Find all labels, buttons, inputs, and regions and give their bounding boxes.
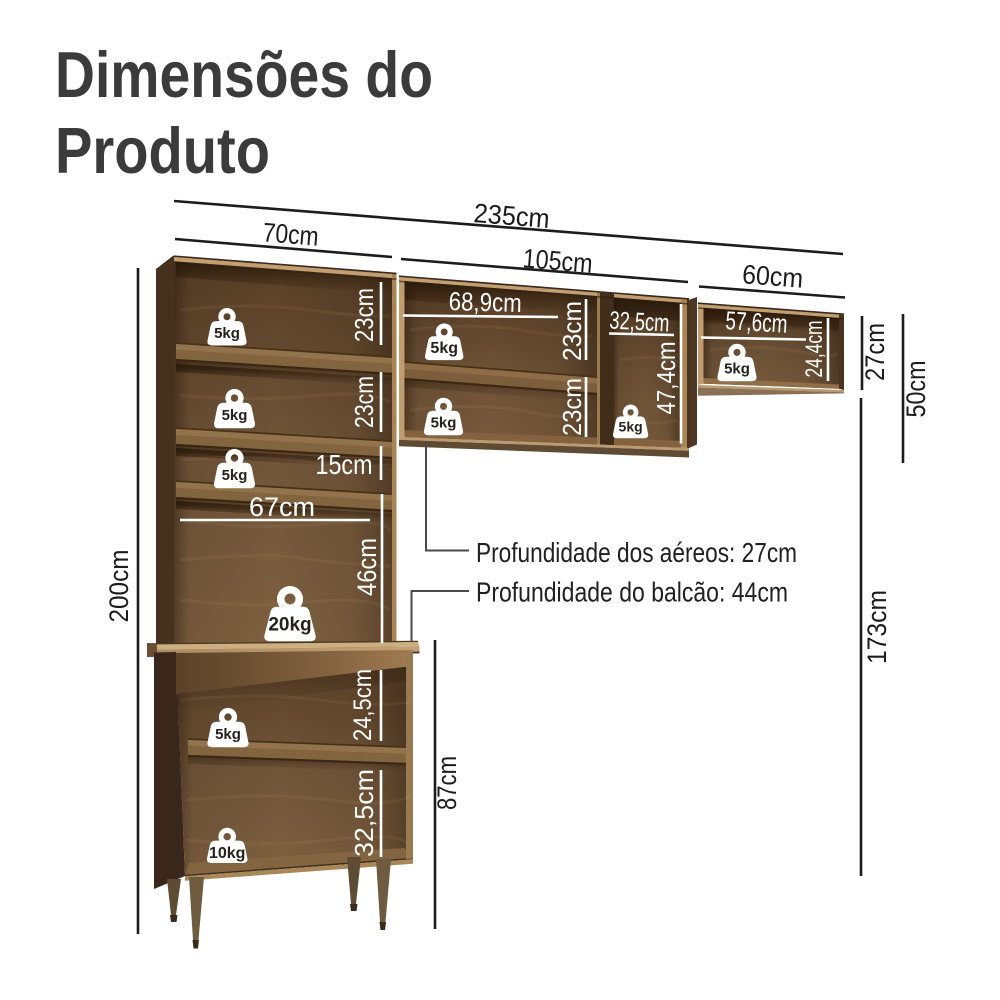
svg-text:15cm: 15cm bbox=[316, 449, 373, 480]
svg-text:Profundidade dos aéreos: 27cm: Profundidade dos aéreos: 27cm bbox=[476, 537, 797, 568]
svg-text:50cm: 50cm bbox=[901, 361, 931, 418]
svg-text:24,5cm: 24,5cm bbox=[349, 669, 377, 741]
svg-text:46cm: 46cm bbox=[352, 538, 382, 596]
svg-text:105cm: 105cm bbox=[522, 243, 594, 279]
svg-text:5kg: 5kg bbox=[430, 340, 458, 357]
svg-text:23cm: 23cm bbox=[557, 301, 587, 361]
svg-text:10kg: 10kg bbox=[209, 845, 245, 862]
svg-text:Produto: Produto bbox=[55, 114, 270, 187]
svg-text:173cm: 173cm bbox=[862, 590, 892, 664]
svg-text:200cm: 200cm bbox=[104, 550, 134, 623]
svg-text:5kg: 5kg bbox=[724, 361, 750, 378]
svg-text:27cm: 27cm bbox=[860, 323, 890, 381]
svg-text:23cm: 23cm bbox=[349, 376, 379, 428]
svg-text:60cm: 60cm bbox=[741, 259, 804, 293]
svg-text:Profundidade do balcão: 44cm: Profundidade do balcão: 44cm bbox=[476, 577, 788, 608]
svg-text:32,5cm: 32,5cm bbox=[349, 769, 379, 857]
svg-text:47,4cm: 47,4cm bbox=[651, 342, 681, 415]
svg-text:235cm: 235cm bbox=[473, 198, 551, 234]
svg-text:24,4cm: 24,4cm bbox=[801, 321, 828, 378]
svg-text:5kg: 5kg bbox=[619, 419, 643, 435]
svg-text:5kg: 5kg bbox=[215, 726, 241, 743]
svg-text:68,9cm: 68,9cm bbox=[448, 286, 522, 318]
svg-text:20kg: 20kg bbox=[268, 615, 311, 636]
svg-text:23cm: 23cm bbox=[557, 378, 587, 436]
svg-text:23cm: 23cm bbox=[349, 288, 379, 342]
svg-text:5kg: 5kg bbox=[431, 415, 457, 432]
svg-text:87cm: 87cm bbox=[432, 756, 462, 810]
svg-text:70cm: 70cm bbox=[262, 217, 320, 251]
svg-text:67cm: 67cm bbox=[249, 492, 315, 522]
svg-text:5kg: 5kg bbox=[222, 467, 248, 484]
svg-text:Dimensões do: Dimensões do bbox=[55, 38, 433, 111]
svg-text:5kg: 5kg bbox=[214, 325, 240, 342]
svg-text:57,6cm: 57,6cm bbox=[725, 305, 789, 339]
svg-text:5kg: 5kg bbox=[222, 407, 248, 424]
